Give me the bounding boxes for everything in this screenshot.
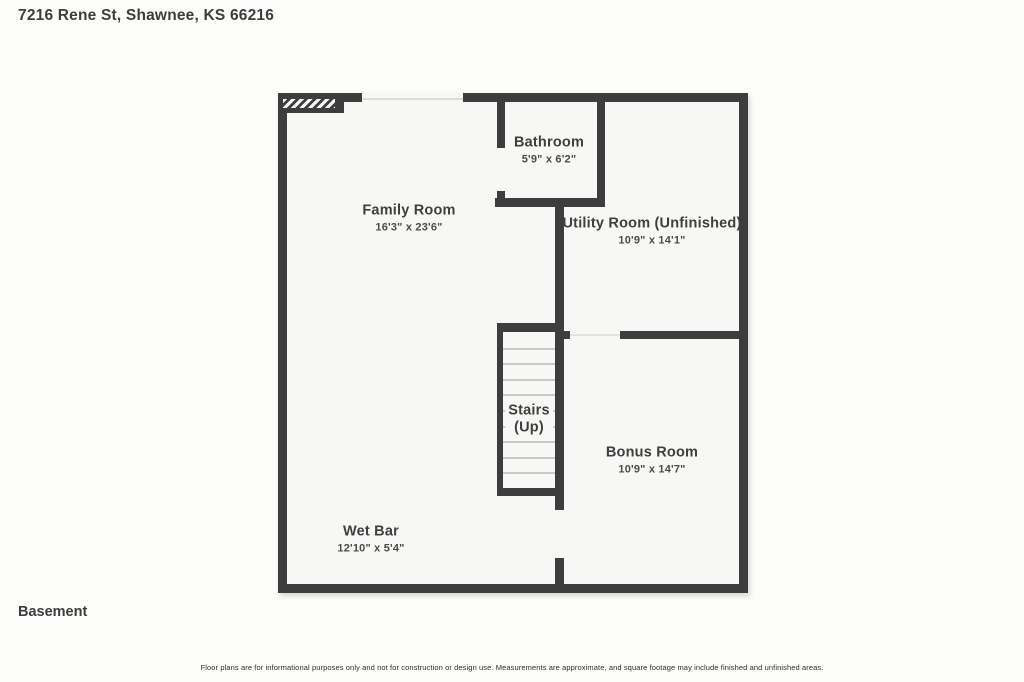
- room-dimensions: 10'9" x 14'1": [563, 234, 742, 246]
- floor-label: Basement: [18, 604, 87, 620]
- wall-center-spine-lower: [555, 558, 564, 593]
- room-name: Utility Room (Unfinished): [563, 216, 742, 233]
- wall-stairs-bottom: [497, 488, 561, 496]
- stair-step: [503, 441, 555, 443]
- room-name: Stairs: [508, 402, 550, 419]
- door-opening-marker: [570, 334, 620, 336]
- room-label-utility-room: Utility Room (Unfinished) 10'9" x 14'1": [563, 216, 742, 247]
- wall-bathroom-left-upper: [497, 93, 505, 148]
- wall-bathroom-bottom: [495, 198, 605, 207]
- stair-step: [503, 348, 555, 350]
- fireplace-icon: [283, 99, 344, 113]
- wall-bottom: [278, 584, 748, 593]
- room-name-line2: (Up): [508, 419, 550, 436]
- stair-step: [503, 472, 555, 474]
- stair-step: [503, 394, 555, 396]
- room-label-wet-bar: Wet Bar 12'10" x 5'4": [337, 524, 404, 555]
- wall-bathroom-right: [597, 93, 605, 198]
- stair-step: [503, 363, 555, 365]
- room-dimensions: 16'3" x 23'6": [362, 221, 455, 233]
- room-dimensions: 10'9" x 14'7": [606, 463, 698, 475]
- wall-top-right-segment: [463, 93, 748, 102]
- room-dimensions: 12'10" x 5'4": [337, 542, 404, 554]
- stair-step: [503, 457, 555, 459]
- stair-step: [503, 379, 555, 381]
- wall-left: [278, 93, 287, 593]
- wall-stairs-top: [497, 323, 555, 332]
- fireplace-hatch-pattern: [283, 99, 335, 108]
- floor-plan-drawing: Family Room 16'3" x 23'6" Bathroom 5'9" …: [278, 93, 748, 593]
- room-dimensions: 5'9" x 6'2": [514, 153, 584, 165]
- address-title: 7216 Rene St, Shawnee, KS 66216: [18, 7, 274, 25]
- disclaimer-text: Floor plans are for informational purpos…: [0, 663, 1024, 672]
- room-label-stairs: Stairs (Up): [505, 401, 553, 436]
- room-name: Wet Bar: [337, 524, 404, 541]
- room-label-bonus-room: Bonus Room 10'9" x 14'7": [606, 445, 698, 476]
- room-name: Family Room: [362, 203, 455, 220]
- room-name: Bonus Room: [606, 445, 698, 462]
- wall-right: [739, 93, 748, 593]
- wall-divider-right: [620, 331, 748, 339]
- room-label-bathroom: Bathroom 5'9" x 6'2": [514, 135, 584, 166]
- room-name: Bathroom: [514, 135, 584, 152]
- room-label-family-room: Family Room 16'3" x 23'6": [362, 203, 455, 234]
- window-marker: [362, 98, 463, 100]
